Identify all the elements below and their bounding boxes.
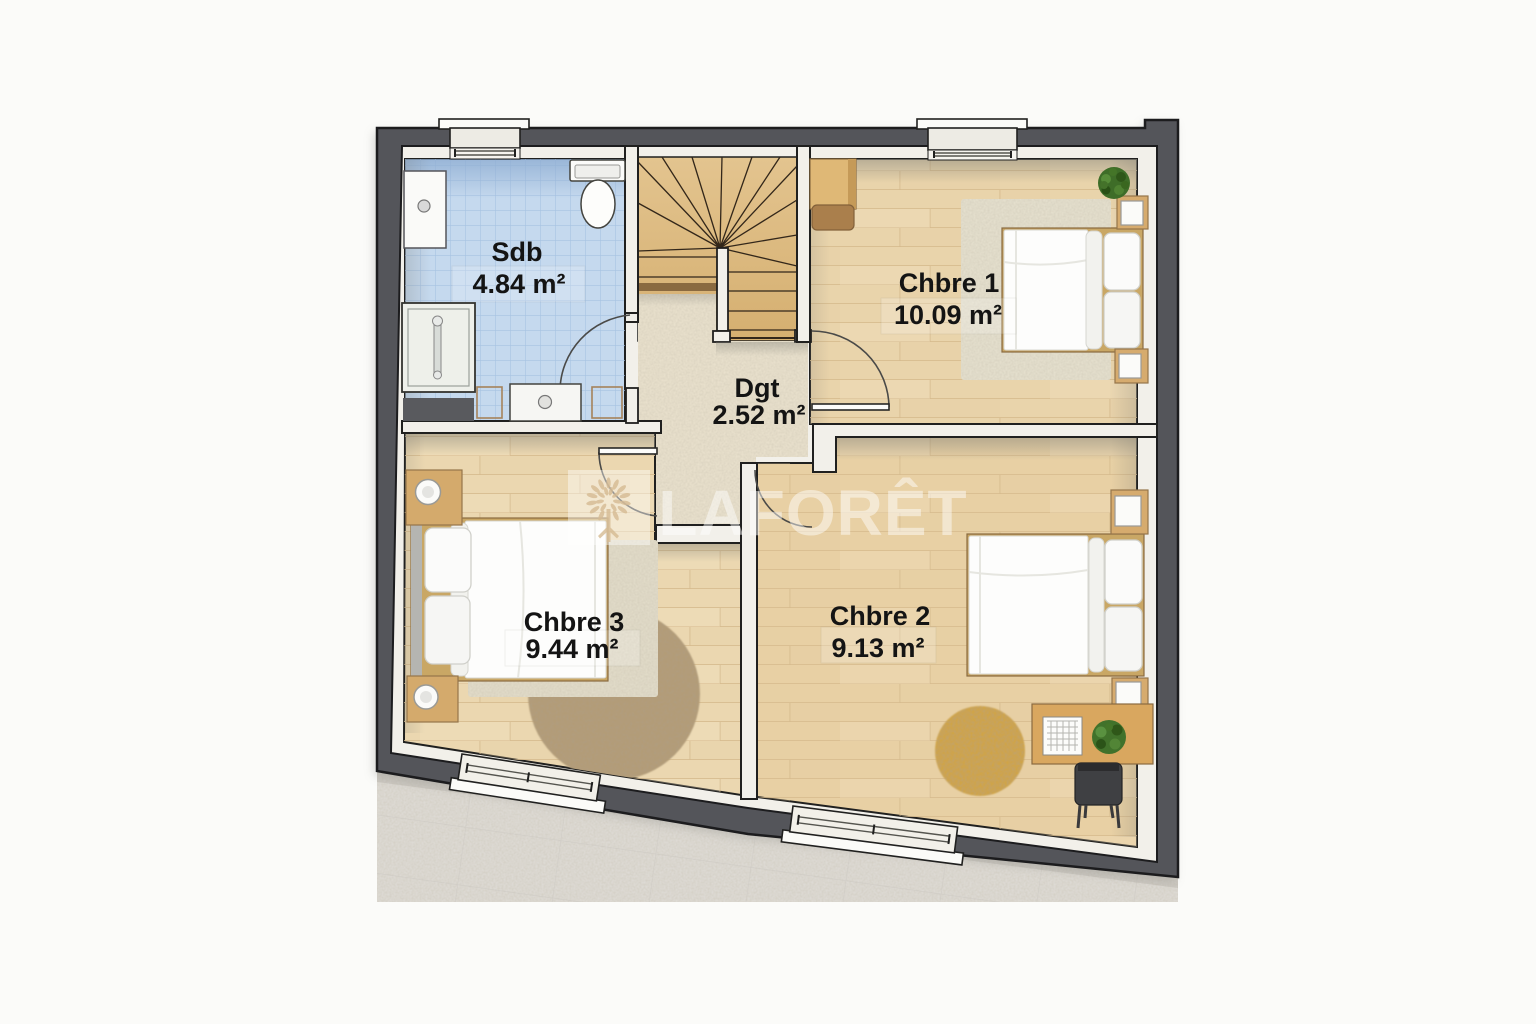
svg-text:Chbre 2: Chbre 2 <box>830 601 931 631</box>
svg-text:4.84 m²: 4.84 m² <box>472 269 565 299</box>
svg-text:9.44 m²: 9.44 m² <box>525 634 618 664</box>
svg-text:2.52 m²: 2.52 m² <box>712 400 805 430</box>
svg-text:LAFORÊT: LAFORÊT <box>658 476 967 549</box>
svg-text:10.09 m²: 10.09 m² <box>894 300 1002 330</box>
svg-text:Dgt: Dgt <box>735 373 780 403</box>
svg-text:Chbre 1: Chbre 1 <box>899 268 1000 298</box>
svg-text:9.13 m²: 9.13 m² <box>831 633 924 663</box>
svg-text:Chbre 3: Chbre 3 <box>524 607 625 637</box>
svg-text:Sdb: Sdb <box>492 237 543 267</box>
